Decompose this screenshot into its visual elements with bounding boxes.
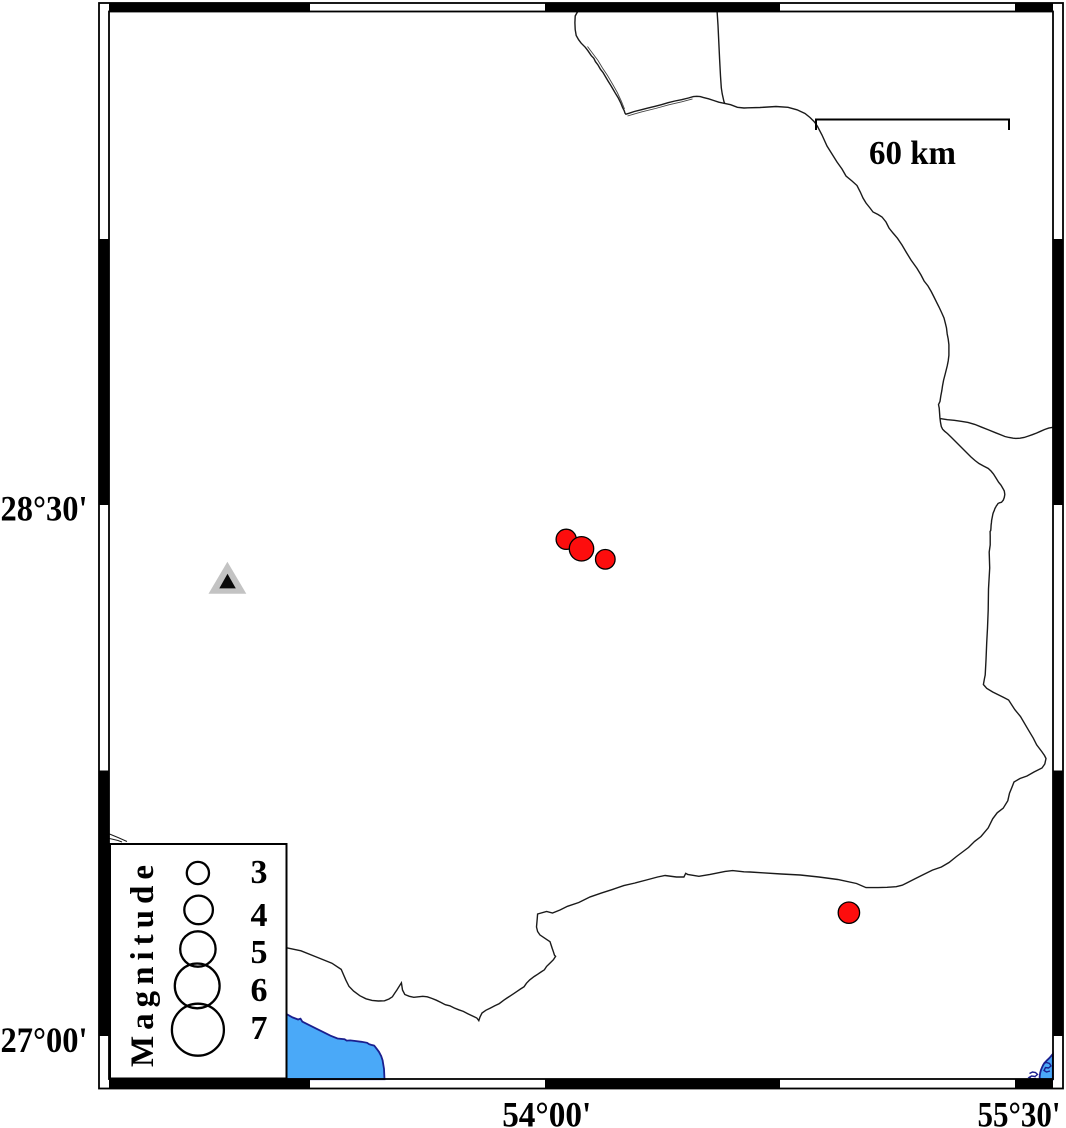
svg-text:27°00': 27°00' (1, 1020, 88, 1060)
svg-text:5: 5 (251, 934, 268, 971)
svg-text:28°30': 28°30' (1, 489, 88, 529)
svg-text:55°30': 55°30' (978, 1094, 1061, 1128)
svg-text:7: 7 (251, 1010, 268, 1047)
svg-text:60 km: 60 km (869, 135, 956, 172)
svg-text:Magnitude: Magnitude (125, 859, 161, 1067)
svg-text:3: 3 (251, 854, 268, 891)
svg-text:4: 4 (251, 897, 268, 934)
svg-text:6: 6 (251, 972, 268, 1009)
svg-text:54°00': 54°00' (502, 1094, 591, 1128)
